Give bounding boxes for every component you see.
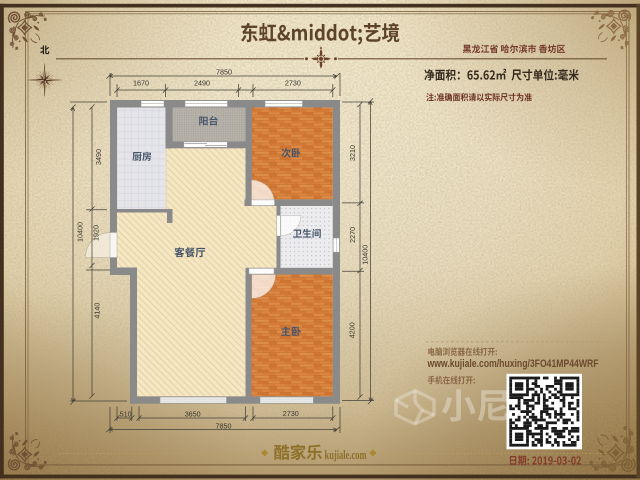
svg-text:2730: 2730 [285,79,301,88]
svg-text:7850: 7850 [216,421,232,430]
svg-text:10400: 10400 [76,222,85,242]
svg-text:2490: 2490 [194,79,210,88]
svg-text:510: 510 [120,410,132,419]
svg-text:www.kujiale.com/huxing/3FO41MP: www.kujiale.com/huxing/3FO41MP44WRF [427,358,599,370]
svg-text:2730: 2730 [283,409,299,418]
svg-text:3210: 3210 [348,145,357,161]
svg-text:3490: 3490 [94,149,103,165]
svg-text:3650: 3650 [185,410,201,419]
svg-text:1670: 1670 [133,79,149,88]
svg-text:4140: 4140 [93,303,102,319]
svg-text:1920: 1920 [92,225,101,241]
svg-text:2270: 2270 [348,227,357,243]
svg-text:7850: 7850 [216,67,232,76]
svg-text:kujiale.com: kujiale.com [325,448,367,462]
svg-text:10400: 10400 [361,245,370,265]
svg-text:4200: 4200 [348,322,357,338]
